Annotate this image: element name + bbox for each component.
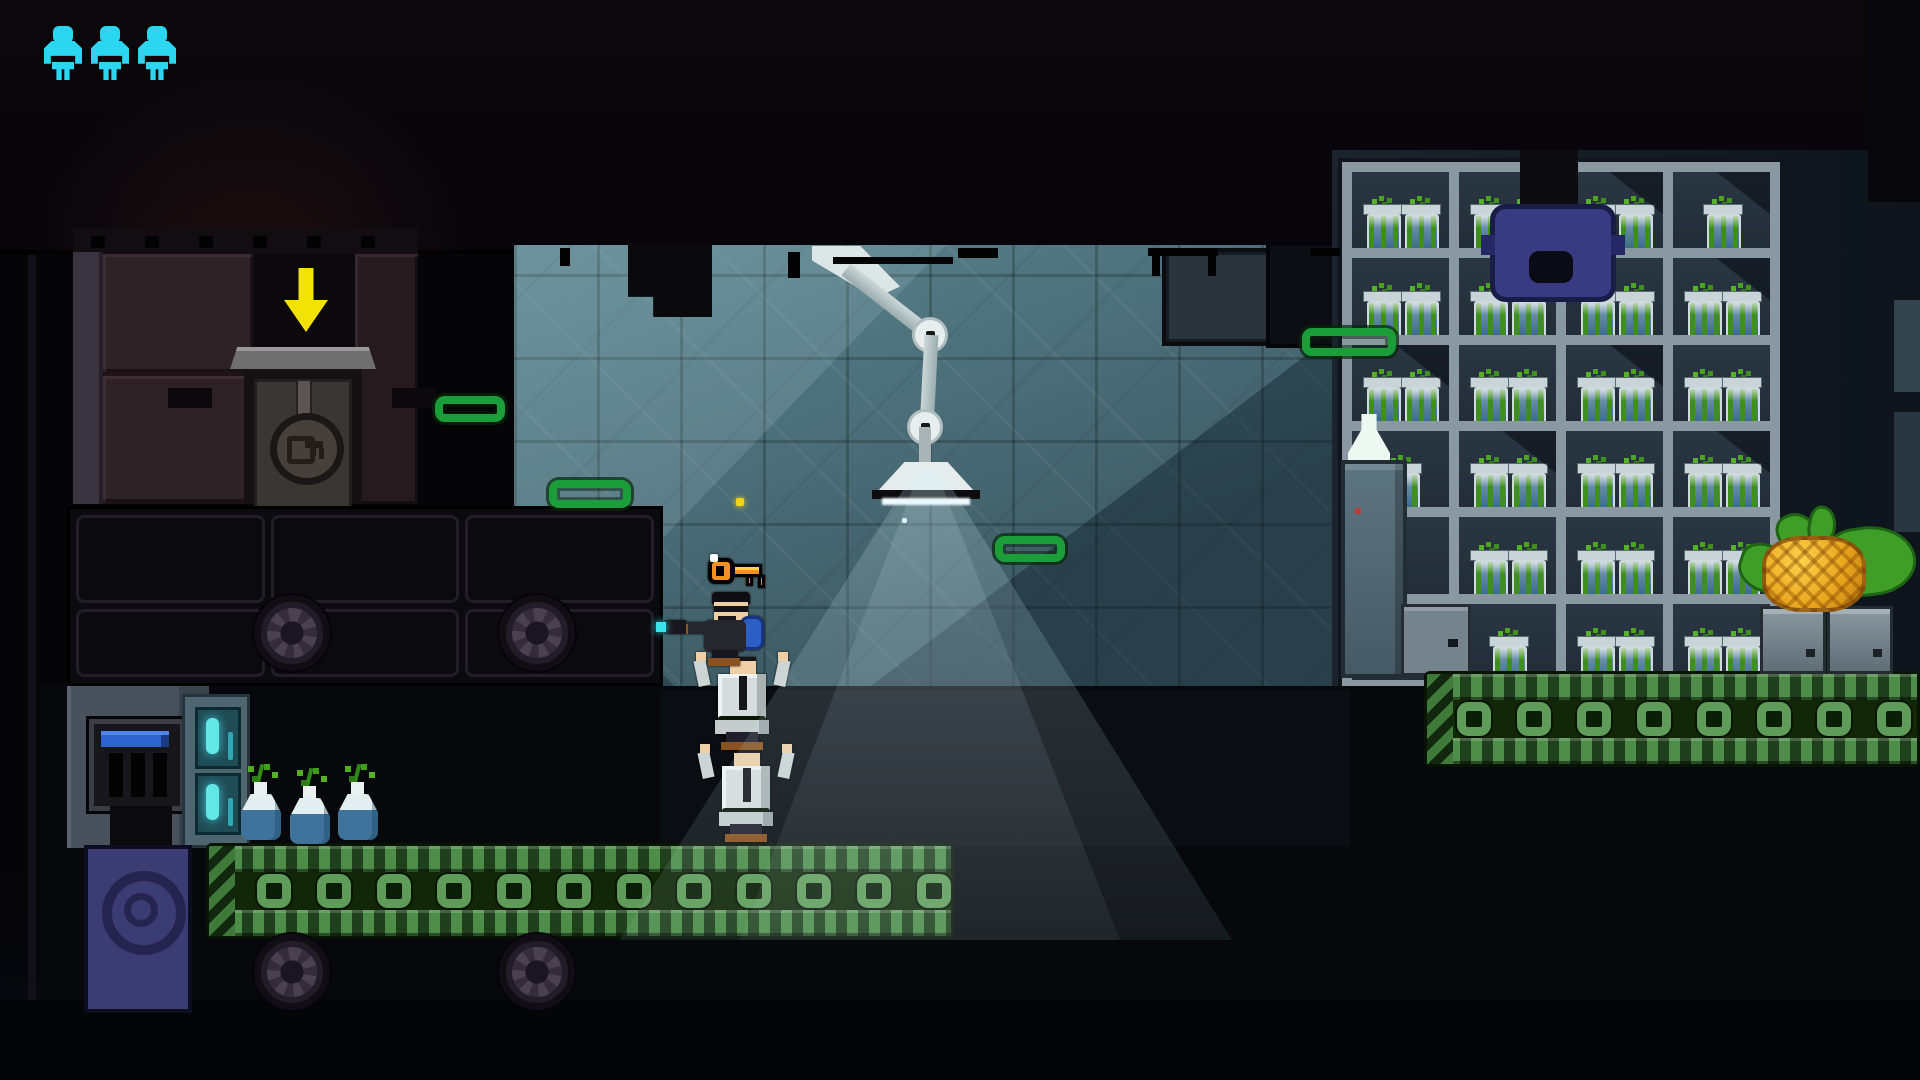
- exit-door-lintel: [230, 347, 376, 369]
- jar-sprout: [1505, 628, 1510, 633]
- belt-ring: [377, 874, 411, 908]
- jar-body: [1688, 560, 1722, 594]
- ceiling-pillar: [1868, 0, 1920, 202]
- life-icon-head: [100, 26, 120, 43]
- jar-sprout: [1700, 283, 1705, 288]
- conveyor-belt-left: [206, 843, 954, 939]
- jar-sprout: [1631, 283, 1636, 288]
- jar-sprout: [1631, 628, 1636, 633]
- terminal-vent-slot: [109, 753, 123, 797]
- jar-body: [1581, 560, 1615, 594]
- player-character: [690, 592, 790, 668]
- room-pillar: [73, 252, 103, 504]
- pineapple-fruit: [1762, 536, 1866, 612]
- shelf-cell: [1459, 345, 1556, 421]
- life-icon-head: [53, 26, 73, 43]
- specimen-jar: [1726, 283, 1756, 335]
- belt-ring: [737, 874, 771, 908]
- jar-body: [1619, 301, 1653, 335]
- terminal-vent-slot: [153, 753, 167, 797]
- jar-sprout: [1700, 369, 1705, 374]
- jar-sprout: [1700, 628, 1705, 633]
- belt-ring: [917, 874, 951, 908]
- machine-tile: [465, 515, 654, 603]
- jar-body: [1726, 473, 1760, 507]
- small-cabinet: [1401, 604, 1471, 676]
- jar-body: [1581, 473, 1615, 507]
- jar-sprout: [1486, 196, 1491, 201]
- stun-gun: [664, 620, 686, 634]
- decor: [338, 794, 378, 840]
- jar-sprout: [1719, 196, 1724, 201]
- decor: [739, 676, 747, 710]
- specimen-jar: [1512, 369, 1542, 421]
- specimen-jar: [1726, 369, 1756, 421]
- plant-flask: [238, 764, 284, 844]
- belt-tread-bottom: [209, 910, 951, 936]
- life-icon-body: [138, 41, 176, 65]
- lives-counter: [44, 26, 176, 80]
- decor: [345, 766, 351, 772]
- room-trim: [199, 236, 213, 248]
- jar-sprout: [1700, 455, 1705, 460]
- wall-panel: [355, 254, 418, 504]
- jar-body: [1581, 387, 1615, 421]
- machine-wheel: [254, 595, 330, 671]
- conveyor-machine-block: [67, 506, 663, 686]
- jar-sprout: [1417, 196, 1422, 201]
- decor: [297, 770, 303, 776]
- lamp-glow: [882, 498, 970, 505]
- specimen-jar: [1619, 196, 1649, 248]
- specimen-jar: [1688, 542, 1718, 594]
- jar-body: [1405, 301, 1439, 335]
- belt-end-cap: [209, 846, 235, 936]
- jar-sprout: [1700, 542, 1705, 547]
- room-trim: [145, 236, 159, 248]
- jar-sprout: [1486, 455, 1491, 460]
- shelf-cell: [1673, 345, 1770, 421]
- jar-sprout: [1486, 542, 1491, 547]
- jar-sprout: [1379, 196, 1384, 201]
- ceiling-trim: [1152, 252, 1160, 276]
- room-trim: [91, 236, 105, 248]
- shelf-cell: [1673, 258, 1770, 334]
- decor: [254, 782, 267, 796]
- decor: [303, 786, 316, 800]
- jar-body: [1474, 560, 1508, 594]
- green-pipe-handle: [995, 536, 1065, 562]
- jar-body: [1474, 301, 1508, 335]
- decor: [248, 766, 254, 772]
- specimen-jar: [1405, 283, 1435, 335]
- cabinet-handle: [1448, 639, 1458, 647]
- specimen-jar: [1688, 283, 1718, 335]
- specimen-jar: [1619, 369, 1649, 421]
- mounted-dispenser-machine: [1490, 204, 1616, 302]
- belt-ring: [437, 874, 471, 908]
- fan-block: [84, 845, 192, 1013]
- pipe-stub: [392, 388, 436, 408]
- belt-ring: [617, 874, 651, 908]
- wall-panel: [103, 254, 253, 372]
- terminal-screen: [101, 731, 169, 747]
- specimen-jar: [1474, 542, 1504, 594]
- belt-ring: [557, 874, 591, 908]
- cryo-tube: [195, 707, 241, 769]
- belt-band: [1427, 700, 1917, 738]
- jar-sprout: [1738, 369, 1743, 374]
- room-trim: [361, 236, 375, 248]
- shelf-cell: [1566, 431, 1663, 507]
- jar-sprout: [1524, 369, 1529, 374]
- belt-ring: [1817, 702, 1851, 736]
- conveyor-belt-right: [1424, 671, 1920, 767]
- life-icon-legs: [52, 62, 74, 80]
- decor: [241, 794, 281, 840]
- tall-cabinet: [1341, 460, 1407, 678]
- shelf-cell: [1352, 345, 1449, 421]
- green-pipe-handle: [435, 396, 505, 422]
- ceiling-trim: [788, 252, 800, 278]
- jar-sprout: [1593, 196, 1598, 201]
- character-stack[interactable]: [678, 548, 818, 848]
- life-icon-body: [44, 41, 82, 65]
- key-icon-tooth: [319, 448, 324, 459]
- jar-body: [1512, 301, 1546, 335]
- far-wall-window: [1894, 300, 1920, 392]
- life-icon-head: [147, 26, 167, 43]
- belt-wheel: [499, 934, 575, 1010]
- life-icon-body: [91, 41, 129, 65]
- belt-tread-top: [209, 846, 951, 872]
- jar-sprout: [1524, 455, 1529, 460]
- machine-wheel: [499, 595, 575, 671]
- decor: [777, 751, 794, 779]
- life-person-icon: [44, 26, 82, 80]
- shelf-cell: [1673, 172, 1770, 248]
- status-led: [1355, 508, 1361, 514]
- robot-lamp: [812, 246, 992, 516]
- stun-gun-muzzle: [656, 622, 666, 632]
- shelf-cell: [1352, 258, 1449, 334]
- wall-vent-window: [1162, 248, 1274, 346]
- ceiling-trim: [958, 248, 998, 258]
- jar-body: [1688, 301, 1722, 335]
- pineapple: [1738, 516, 1914, 616]
- jar-body: [1474, 473, 1508, 507]
- specimen-jar: [1688, 369, 1718, 421]
- cryo-tube: [195, 773, 241, 835]
- specimen-jar: [1581, 455, 1611, 507]
- belt-tread-bottom: [1427, 738, 1917, 764]
- jar-sprout: [1593, 369, 1598, 374]
- jar-sprout: [1738, 455, 1743, 460]
- wall-seam: [28, 255, 36, 1005]
- dust-particle: [736, 498, 744, 506]
- jar-sprout: [1524, 542, 1529, 547]
- life-icon-legs: [99, 62, 121, 80]
- decor: [746, 575, 753, 586]
- dust-particle: [902, 518, 907, 523]
- jar-sprout: [1417, 283, 1422, 288]
- plant-flask: [287, 768, 333, 848]
- jar-body: [1512, 560, 1546, 594]
- jar-sprout: [1631, 455, 1636, 460]
- room-trim: [307, 236, 321, 248]
- jar-body: [1512, 473, 1546, 507]
- specimen-jar: [1512, 542, 1542, 594]
- decor: [710, 554, 718, 562]
- specimen-jar: [1512, 455, 1542, 507]
- jar-body: [1619, 560, 1653, 594]
- carried-key-icon: [708, 548, 770, 588]
- pipe-stub: [168, 388, 212, 408]
- player-torso: [704, 620, 746, 652]
- decor: [758, 575, 765, 588]
- jar-body: [1512, 387, 1546, 421]
- shelf-cell: [1352, 172, 1449, 248]
- scientist-bottom: [698, 744, 794, 844]
- decor: [697, 751, 714, 779]
- belt-ring: [317, 874, 351, 908]
- ceiling-trim: [1310, 248, 1340, 256]
- decor: [743, 768, 751, 802]
- jar-sprout: [1593, 628, 1598, 633]
- jar-sprout: [1593, 542, 1598, 547]
- decor: [1873, 649, 1882, 657]
- specimen-jar: [1688, 455, 1718, 507]
- machine-tile: [76, 609, 265, 677]
- jar-body: [1619, 214, 1653, 248]
- jar-body: [1726, 387, 1760, 421]
- specimen-jar: [1707, 196, 1737, 248]
- specimen-jar: [1619, 283, 1649, 335]
- jar-body: [1405, 387, 1439, 421]
- decor: [1806, 649, 1815, 657]
- specimen-jar: [1367, 369, 1397, 421]
- jar-body: [1688, 387, 1722, 421]
- belt-ring: [497, 874, 531, 908]
- decor: [716, 566, 724, 576]
- jar-sprout: [1486, 369, 1491, 374]
- ceiling-trim: [833, 257, 953, 264]
- shelf-cell: [1673, 431, 1770, 507]
- belt-ring: [1877, 702, 1911, 736]
- shelf-cell: [1459, 517, 1556, 593]
- belt-wheel: [254, 934, 330, 1010]
- specimen-jar: [1405, 196, 1435, 248]
- jar-sprout: [1631, 542, 1636, 547]
- specimen-jar: [1367, 196, 1397, 248]
- jar-body: [1367, 214, 1401, 248]
- jar-body: [1581, 301, 1615, 335]
- decor: [725, 834, 767, 842]
- belt-ring: [1577, 702, 1611, 736]
- jar-body: [1688, 473, 1722, 507]
- specimen-jar: [1405, 369, 1435, 421]
- machine-tile: [271, 515, 460, 603]
- green-pipe-handle: [549, 480, 631, 508]
- storage-cabinet: [1827, 606, 1893, 674]
- specimen-jar: [1619, 455, 1649, 507]
- belt-ring: [677, 874, 711, 908]
- belt-ring: [857, 874, 891, 908]
- jar-sprout: [1738, 283, 1743, 288]
- belt-band: [209, 872, 951, 910]
- specimen-jar: [1581, 369, 1611, 421]
- ceiling-trim: [1208, 252, 1216, 276]
- belt-ring: [1697, 702, 1731, 736]
- jar-sprout: [1631, 369, 1636, 374]
- lamp-head: [877, 462, 975, 492]
- jar-body: [1707, 214, 1741, 248]
- jar-sprout: [1417, 369, 1422, 374]
- shelf-cell: [1459, 431, 1556, 507]
- jar-body: [1619, 473, 1653, 507]
- plant-flask: [335, 764, 381, 844]
- life-icon-legs: [146, 62, 168, 80]
- hanging-pillar: [1520, 150, 1578, 212]
- door-lock-emblem: [270, 413, 344, 485]
- room-trim: [253, 236, 267, 248]
- belt-ring: [797, 874, 831, 908]
- ceiling-trim: [560, 248, 570, 266]
- specimen-jar: [1619, 542, 1649, 594]
- far-wall-window: [1894, 412, 1920, 532]
- specimen-jar: [1367, 283, 1397, 335]
- decor: [351, 782, 364, 796]
- belt-ring: [257, 874, 291, 908]
- key-icon-tooth: [311, 448, 316, 456]
- jar-body: [1474, 387, 1508, 421]
- terminal-vent-slot: [131, 753, 145, 797]
- player-visor: [714, 606, 748, 612]
- jar-body: [1619, 387, 1653, 421]
- specimen-jar: [1581, 542, 1611, 594]
- life-person-icon: [91, 26, 129, 80]
- decor: [206, 784, 219, 820]
- jar-body: [1726, 301, 1760, 335]
- belt-ring: [1757, 702, 1791, 736]
- life-person-icon: [138, 26, 176, 80]
- shelf-cell: [1566, 517, 1663, 593]
- player-shoes: [708, 658, 740, 666]
- player-arm: [686, 622, 708, 634]
- belt-end-cap: [1427, 674, 1453, 764]
- wall-terminal[interactable]: [86, 716, 188, 814]
- machine-tile: [76, 515, 265, 603]
- key-icon-shaft: [305, 441, 323, 448]
- green-pipe-handle: [1302, 328, 1396, 356]
- specimen-jar: [1726, 455, 1756, 507]
- lamp-stem: [919, 427, 931, 467]
- floor-shadow: [0, 1000, 1920, 1080]
- storage-cabinet: [1760, 606, 1826, 674]
- jar-sprout: [1631, 196, 1636, 201]
- exit-door[interactable]: [244, 369, 362, 504]
- game-viewport[interactable]: [0, 0, 1920, 1080]
- shelf-cell: [1566, 345, 1663, 421]
- belt-ring: [1457, 702, 1491, 736]
- belt-ring: [1517, 702, 1551, 736]
- decor: [290, 798, 330, 844]
- specimen-jar: [1474, 455, 1504, 507]
- specimen-jar: [1474, 369, 1504, 421]
- jar-sprout: [1379, 369, 1384, 374]
- jar-sprout: [1738, 628, 1743, 633]
- decor: [206, 718, 219, 754]
- belt-ring: [1637, 702, 1671, 736]
- belt-tread-top: [1427, 674, 1917, 700]
- terminal-pedestal: [110, 806, 172, 846]
- jar-sprout: [1379, 283, 1384, 288]
- room-top-bar: [73, 228, 418, 254]
- shelf-cell: [1459, 604, 1556, 680]
- exit-room: [73, 228, 418, 504]
- shelf-cell: [1566, 604, 1663, 680]
- jar-sprout: [1593, 455, 1598, 460]
- jar-body: [1405, 214, 1439, 248]
- decor: [721, 742, 763, 750]
